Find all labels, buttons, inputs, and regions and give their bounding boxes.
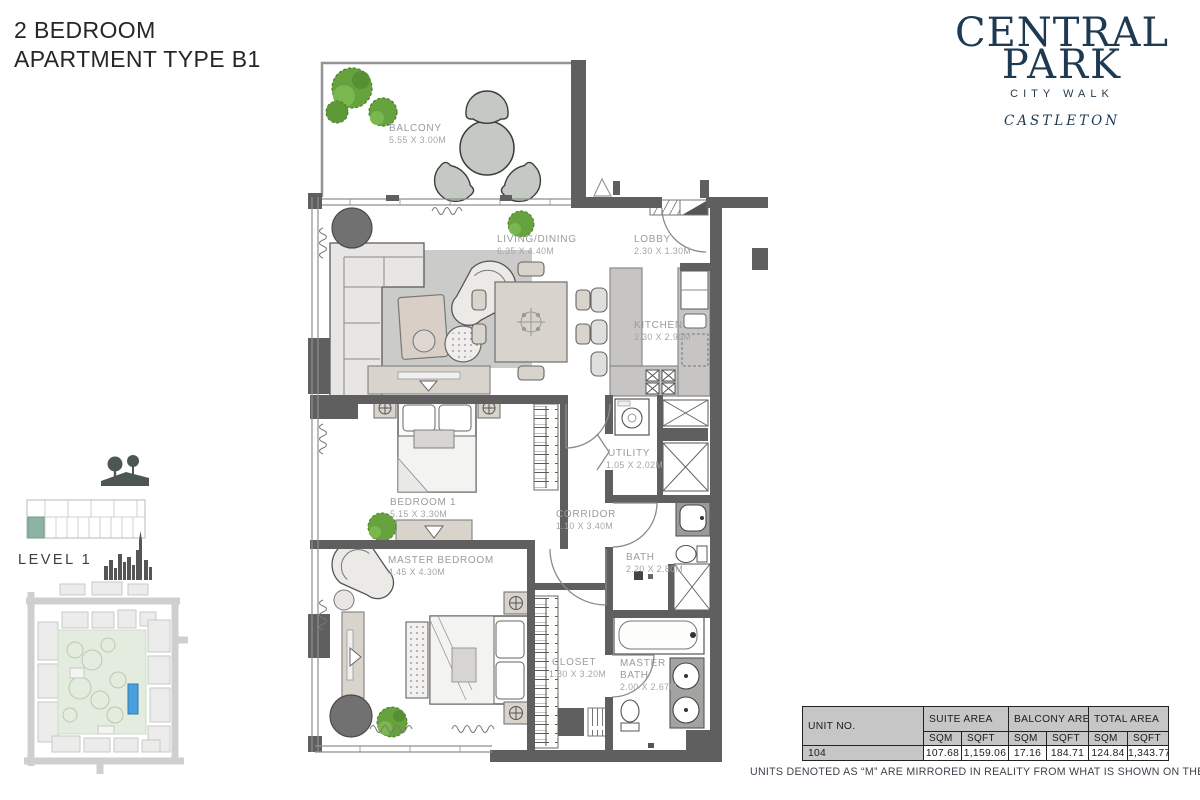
bench: [406, 622, 428, 698]
park-icon: [101, 455, 149, 486]
cell-suite-sqft: 1,159.06: [962, 746, 1009, 761]
room-label-living: LIVING/DINING: [497, 234, 577, 245]
col-suite-area: SUITE AREA: [924, 707, 1009, 732]
room-dims-bath: 2.20 X 2.80M: [626, 564, 683, 574]
room-dims-closet: 1.80 X 3.20M: [549, 669, 606, 679]
column: [330, 695, 372, 737]
unit-area-table: UNIT NO. SUITE AREA BALCONY AREA TOTAL A…: [802, 706, 1169, 761]
toilet: [676, 546, 707, 563]
room-dims-living: 6.35 X 4.40M: [497, 246, 554, 256]
cell-suite-sqm: 107.68: [924, 746, 962, 761]
wardrobe: [534, 404, 558, 490]
room-label-bedroom1: BEDROOM 1: [390, 497, 456, 508]
cell-total-sqft: 1,343.77: [1128, 746, 1169, 761]
bed: [398, 400, 476, 492]
col-suite-sqm: SQM: [924, 732, 962, 746]
bedroom1-furniture: [368, 366, 558, 546]
room-dims-master-bath: 2.00 X 2.67M: [620, 682, 677, 692]
kitchen-sink: [684, 314, 706, 328]
room-label-utility: UTILITY: [608, 448, 650, 459]
room-dims-kitchen: 2.30 X 2.90M: [634, 332, 691, 342]
service-shafts: [663, 400, 708, 491]
side-table: [413, 330, 435, 352]
floor-plan-page: 2 BEDROOM APARTMENT TYPE B1 CENTRAL PARK…: [0, 0, 1200, 800]
cell-balcony-sqm: 17.16: [1009, 746, 1047, 761]
room-dims-bedroom1: 5.15 X 3.30M: [390, 509, 447, 519]
balcony-plants-icon: [326, 68, 397, 126]
col-balcony-sqft: SQFT: [1047, 732, 1089, 746]
bed: [430, 616, 528, 704]
room-label-kitchen: KITCHEN: [634, 320, 683, 331]
bathtub: [614, 617, 704, 654]
col-total-area: TOTAL AREA: [1089, 707, 1169, 732]
room-label-master-bedroom: MASTER BEDROOM: [388, 555, 494, 566]
bar-stools: [591, 288, 607, 376]
nightstand: [504, 702, 528, 724]
room-label-master-bath-1: MASTER: [620, 658, 666, 669]
level-label: LEVEL 1: [18, 552, 92, 568]
col-unit-no: UNIT NO.: [803, 707, 924, 746]
floor-plan-drawing: BALCONY 5.55 X 3.00M LIVING/DINING 6.35 …: [0, 0, 1200, 800]
table-row: 104 107.68 1,159.06 17.16 184.71 124.84 …: [803, 746, 1169, 761]
side-table: [334, 590, 354, 610]
room-dims-master-bedroom: 4.45 X 4.30M: [388, 567, 445, 577]
col-total-sqft: SQFT: [1128, 732, 1169, 746]
corridor-door: [566, 404, 610, 448]
cell-balcony-sqft: 184.71: [1047, 746, 1089, 761]
kitchen-island: [610, 268, 642, 368]
site-map: [24, 582, 188, 774]
column: [332, 208, 372, 248]
highlighted-unit-level: [28, 517, 44, 538]
nightstand: [504, 592, 528, 614]
level-indicator: [27, 500, 145, 538]
col-balcony-sqm: SQM: [1009, 732, 1047, 746]
room-dims-corridor: 1.10 X 3.40M: [556, 521, 613, 531]
room-label-master-bath-2: BATH: [620, 670, 649, 681]
room-label-corridor: CORRIDOR: [556, 509, 616, 520]
mirror-footnote: UNITS DENOTED AS “M” ARE MIRRORED IN REA…: [750, 766, 1190, 778]
room-label-balcony: BALCONY: [389, 123, 442, 134]
balcony-table-icon: [426, 91, 549, 210]
cell-total-sqm: 124.84: [1089, 746, 1128, 761]
room-label-bath: BATH: [626, 552, 655, 563]
room-dims-lobby: 2.30 X 1.30M: [634, 246, 691, 256]
utility-fixtures: [615, 399, 649, 435]
bath-door: [613, 503, 657, 547]
col-total-sqm: SQM: [1089, 732, 1128, 746]
toilet: [621, 700, 639, 731]
room-dims-balcony: 5.55 X 3.00M: [389, 135, 446, 145]
room-label-lobby: LOBBY: [634, 234, 671, 245]
tv-console: [342, 612, 364, 698]
col-balcony-area: BALCONY AREA: [1009, 707, 1089, 732]
double-vanity: [670, 658, 704, 728]
balcony-area: [322, 60, 709, 210]
col-suite-sqft: SQFT: [962, 732, 1009, 746]
room-dims-utility: 1.05 X 2.02M: [606, 460, 663, 470]
room-label-closet: CLOSET: [552, 657, 596, 668]
cell-unit: 104: [803, 746, 924, 761]
highlighted-unit-sitemap: [128, 684, 138, 714]
